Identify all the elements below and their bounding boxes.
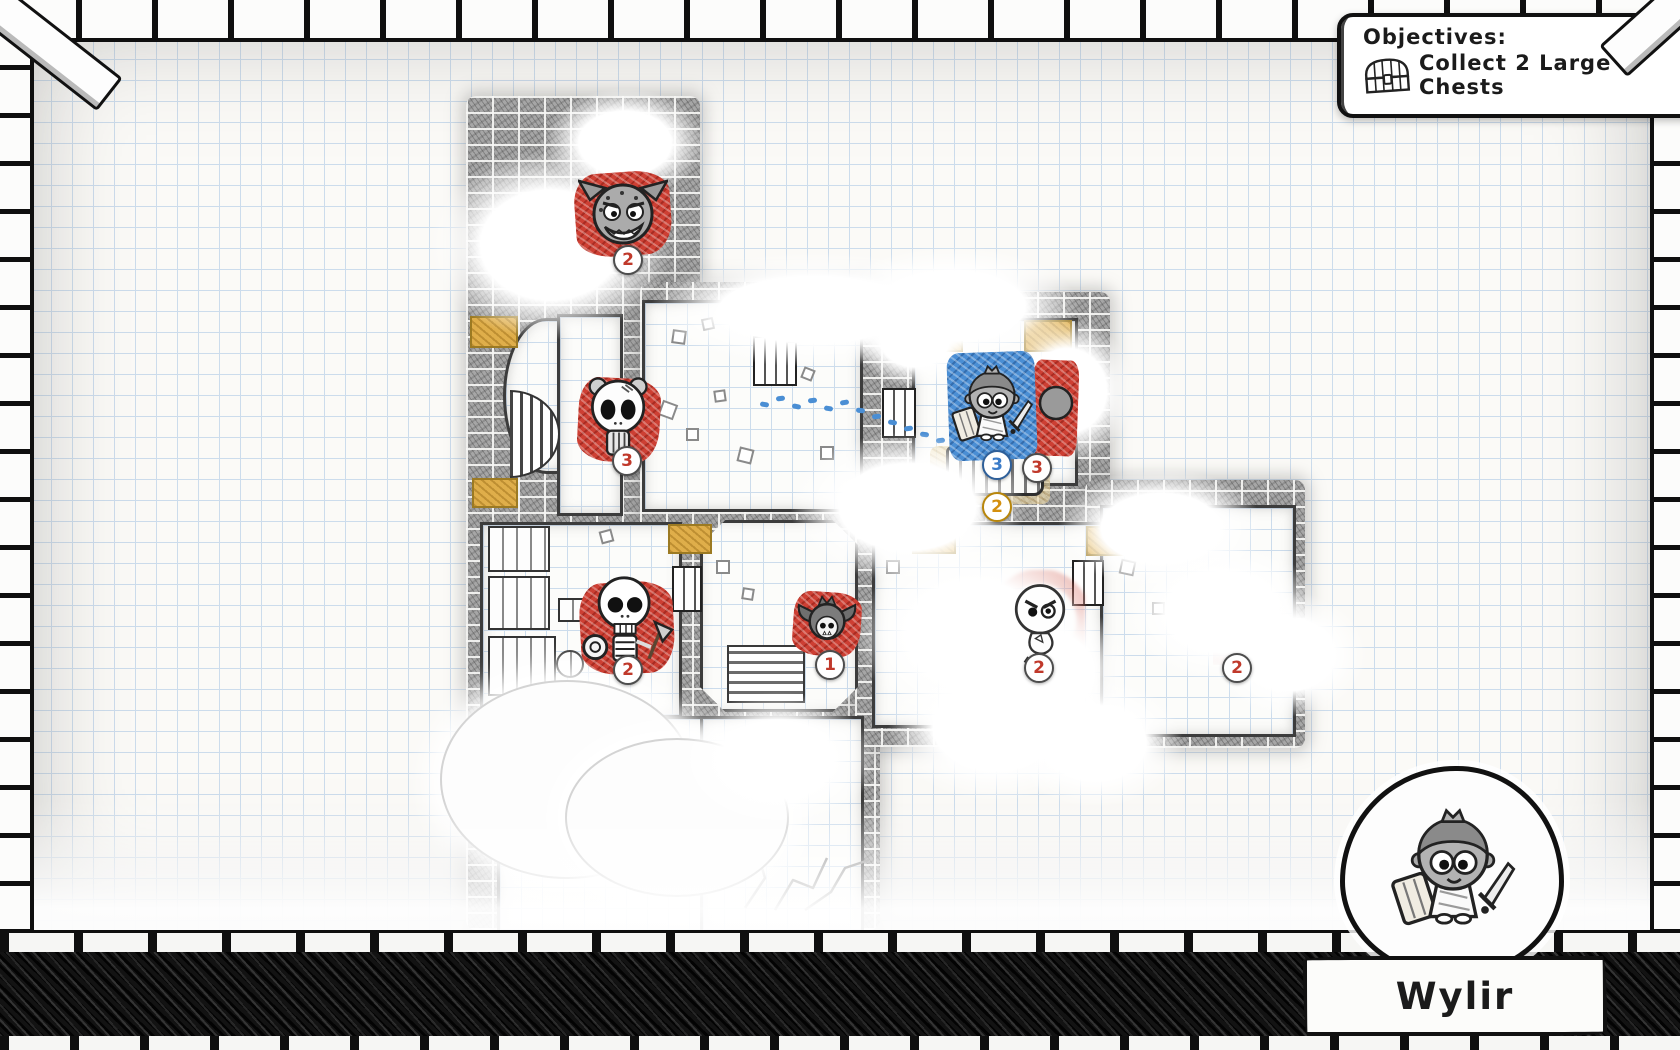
bed-sketch xyxy=(488,576,550,630)
debris xyxy=(686,428,699,441)
hp-badge-behind-player: 3 xyxy=(1022,453,1052,483)
hp-badge-skeleton: 2 xyxy=(613,655,643,685)
frame-left-bricks xyxy=(0,34,34,934)
gold-tile xyxy=(668,524,712,554)
hero-portrait-icon xyxy=(1389,807,1517,929)
gold-tile xyxy=(472,478,518,508)
bottom-bar-bricks-bottom xyxy=(0,1036,1680,1050)
hero-nameplate: Wylir xyxy=(1303,956,1607,1036)
hp-badge-fogged-enemy: 2 xyxy=(1222,653,1252,683)
hp-badge-skull-bear: 3 xyxy=(612,446,642,476)
gold-badge-player: 2 xyxy=(982,492,1012,522)
frame-right-bricks xyxy=(1650,34,1680,934)
hp-badge-bat: 1 xyxy=(815,650,845,680)
door-quarters-east xyxy=(672,566,702,612)
chest-icon xyxy=(1362,52,1413,97)
fog-cloud xyxy=(1008,678,1183,808)
bed-sketch xyxy=(488,526,550,572)
player-token-wylir[interactable] xyxy=(948,352,1036,460)
debris xyxy=(713,389,727,403)
fog-cloud xyxy=(680,692,875,827)
enemy-token-bat[interactable] xyxy=(793,592,861,656)
bat-icon xyxy=(794,595,860,653)
enemy-token-gremlin[interactable] xyxy=(575,172,671,256)
debris xyxy=(741,587,755,601)
gremlin-icon xyxy=(578,174,668,254)
hp-badge-gremlin: 2 xyxy=(613,245,643,275)
debris xyxy=(716,560,730,574)
move-badge-player: 3 xyxy=(982,450,1012,480)
hidden-enemy-icon xyxy=(1036,378,1076,428)
enemy-token-behind-player[interactable] xyxy=(1032,360,1078,456)
game-screen: 2 3 2 1 3 3 2 2 2 Objectives: Collect 2 … xyxy=(0,0,1680,1050)
hero-name: Wylir xyxy=(1396,975,1515,1018)
player-hero-icon xyxy=(950,364,1034,444)
hp-badge-angry-chick: 2 xyxy=(1024,653,1054,683)
